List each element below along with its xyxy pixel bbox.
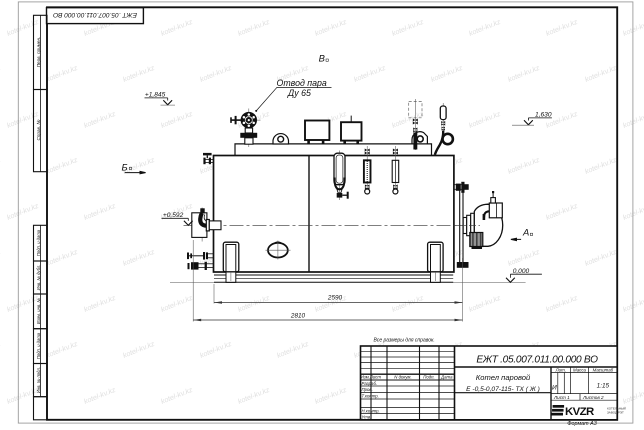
svg-text:0,000: 0,000 bbox=[513, 268, 530, 275]
svg-text:Т.контр.: Т.контр. bbox=[362, 393, 379, 398]
svg-text:Все размеры для справок.: Все размеры для справок. bbox=[374, 337, 435, 343]
svg-text:Взам. инв. №: Взам. инв. № bbox=[36, 298, 41, 324]
svg-text:Справ. №: Справ. № bbox=[36, 120, 41, 141]
svg-text:N докум.: N докум. bbox=[394, 375, 411, 380]
svg-text:Отвод пара: Отвод пара bbox=[277, 78, 327, 88]
svg-text:Листов 2: Листов 2 bbox=[582, 395, 604, 400]
svg-text:И: И bbox=[552, 385, 557, 392]
svg-text:Изм.Лист: Изм.Лист bbox=[361, 375, 382, 380]
svg-text:Инв. № дубл.: Инв. № дубл. bbox=[36, 265, 41, 291]
svg-text:Котел паровой: Котел паровой bbox=[476, 373, 531, 382]
svg-text:Е -0,5-0,07-115- ТХ ( Ж ): Е -0,5-0,07-115- ТХ ( Ж ) bbox=[466, 386, 540, 393]
svg-text:ЕЖТ .05.007.011.00.000 ВО: ЕЖТ .05.007.011.00.000 ВО bbox=[53, 11, 137, 18]
svg-text:1,630: 1,630 bbox=[535, 112, 552, 119]
svg-text:Масштаб: Масштаб bbox=[593, 367, 614, 372]
svg-text:Подп.: Подп. bbox=[423, 375, 434, 380]
svg-text:2590: 2590 bbox=[327, 294, 343, 301]
svg-text:Ду 65: Ду 65 bbox=[287, 88, 311, 98]
svg-text:2810: 2810 bbox=[290, 312, 306, 319]
svg-text:KVZR: KVZR bbox=[565, 406, 594, 418]
svg-text:Дата: Дата bbox=[440, 375, 453, 380]
svg-text:Формат А3: Формат А3 bbox=[567, 421, 597, 427]
svg-text:Лист 1: Лист 1 bbox=[553, 395, 570, 400]
svg-text:В: В bbox=[319, 53, 325, 64]
svg-text:ЗАВОД РЭТ: ЗАВОД РЭТ bbox=[607, 411, 624, 415]
svg-text:Разраб.: Разраб. bbox=[362, 381, 378, 386]
svg-text:ЕЖТ .05.007.011.00.000 ВО: ЕЖТ .05.007.011.00.000 ВО bbox=[476, 354, 598, 365]
svg-text:Подп. и дата: Подп. и дата bbox=[36, 332, 41, 359]
svg-text:Утв.: Утв. bbox=[362, 414, 372, 419]
svg-text:Н.контр.: Н.контр. bbox=[362, 408, 380, 413]
svg-text:+1,845: +1,845 bbox=[145, 91, 166, 98]
svg-text:Подп. и дата: Подп. и дата bbox=[36, 229, 41, 256]
svg-text:Масса: Масса bbox=[573, 367, 587, 372]
svg-text:1:15: 1:15 bbox=[597, 383, 610, 390]
svg-text:Б: Б bbox=[122, 162, 128, 173]
svg-text:Перв. примен.: Перв. примен. bbox=[36, 37, 41, 68]
svg-text:Лит.: Лит. bbox=[555, 367, 566, 372]
svg-text:Инв. № подл.: Инв. № подл. bbox=[36, 367, 41, 393]
svg-text:А: А bbox=[522, 227, 529, 238]
svg-text:Пров.: Пров. bbox=[362, 387, 373, 392]
